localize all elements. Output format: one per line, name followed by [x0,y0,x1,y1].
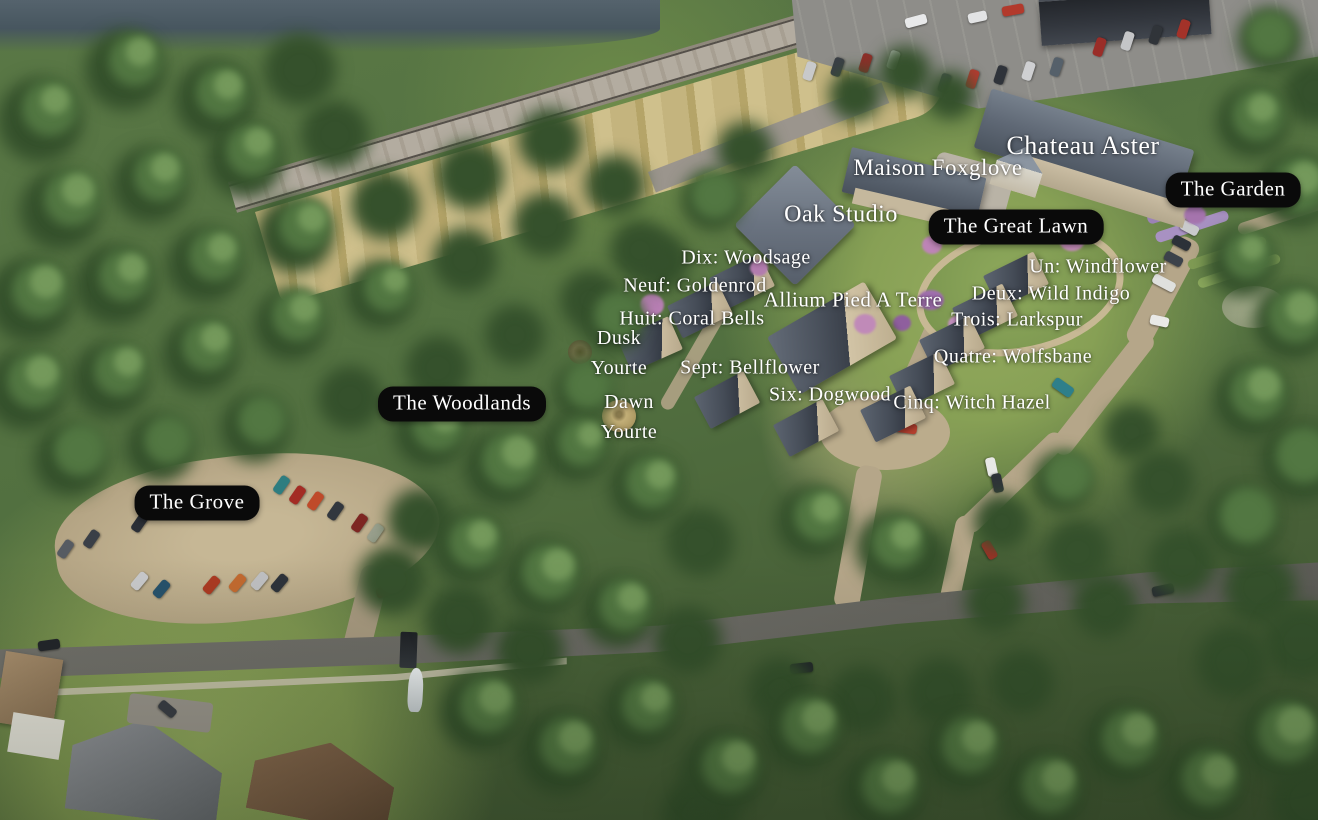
blossom-tree [1184,206,1206,224]
dusk-yurt [568,340,592,364]
label-un-windflower: Un: Windflower [1029,256,1166,279]
label-cinq-witch-hazel: Cinq: Witch Hazel [893,392,1050,415]
area-badge-the-woodlands[interactable]: The Woodlands [378,387,546,422]
label-trois-larkspur: Trois: Larkspur [951,309,1083,332]
grove-parking-lot [46,432,448,643]
blossom-tree [854,314,876,334]
cottage-sept [694,371,760,429]
water [0,0,660,52]
label-dawn-yourte-line: Yourte [601,417,658,447]
label-dawn-yourte: Dawn Yourte [601,387,658,447]
garden-bed-gray [1222,286,1286,328]
area-badge-the-grove[interactable]: The Grove [135,486,260,521]
label-maison-foxglove: Maison Foxglove [853,155,1022,181]
label-dawn-line: Dawn [601,387,658,417]
label-dusk-yourte: Dusk Yourte [591,323,648,383]
area-badge-the-garden[interactable]: The Garden [1166,173,1301,208]
label-chateau-aster: Chateau Aster [1006,131,1159,161]
label-allium-pied-a-terre: Allium Pied A Terre [764,288,943,313]
van [1051,377,1075,399]
label-six-dogwood: Six: Dogwood [769,384,891,407]
car [980,539,998,560]
boat [407,668,424,713]
aerial-site-map: Chateau Aster Maison Foxglove Oak Studio… [0,0,1318,820]
campus-drive [833,464,884,611]
label-dusk-yourte-line: Yourte [591,353,648,383]
house-wall-white [7,712,65,760]
label-neuf-goldenrod: Neuf: Goldenrod [623,275,767,298]
label-dusk-line: Dusk [591,323,648,353]
label-quatre-wolfsbane: Quatre: Wolfsbane [934,346,1092,369]
label-dix-woodsage: Dix: Woodsage [681,247,811,270]
area-badge-the-great-lawn[interactable]: The Great Lawn [929,210,1104,245]
car [790,662,814,674]
flower-bed [893,315,911,331]
house-roof-brown [246,729,401,820]
label-oak-studio: Oak Studio [784,202,898,229]
truck-trailer [399,632,417,669]
label-sept-bellflower: Sept: Bellflower [680,357,820,380]
label-deux-wild-indigo: Deux: Wild Indigo [972,283,1130,306]
